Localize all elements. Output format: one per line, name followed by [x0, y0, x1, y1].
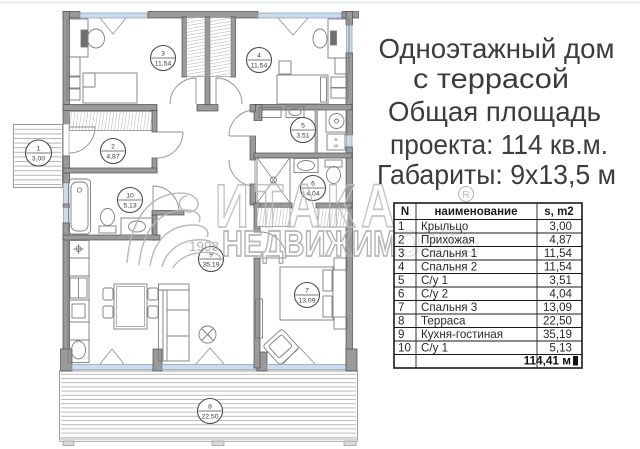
svg-text:11,54: 11,54	[251, 63, 268, 70]
svg-text:с террасой: с террасой	[413, 63, 569, 94]
svg-text:Одноэтажный дом: Одноэтажный дом	[379, 33, 615, 64]
svg-text:11,54: 11,54	[155, 61, 172, 68]
svg-text:4,87: 4,87	[106, 154, 119, 161]
svg-text:11,54: 11,54	[544, 261, 573, 274]
svg-text:Общая площадь: Общая площадь	[388, 96, 601, 127]
svg-text:4: 4	[257, 53, 261, 60]
svg-text:22,50: 22,50	[543, 315, 572, 328]
svg-text:Терраса: Терраса	[421, 315, 466, 328]
svg-text:9: 9	[398, 328, 404, 341]
svg-text:114,41 м: 114,41 м	[524, 354, 571, 368]
svg-text:4,04: 4,04	[549, 288, 572, 301]
svg-text:6: 6	[398, 288, 404, 301]
svg-text:проекта: 114 кв.м.: проекта: 114 кв.м.	[390, 129, 608, 160]
svg-text:8: 8	[398, 315, 404, 328]
svg-text:22,50: 22,50	[201, 414, 218, 421]
svg-text:3,00: 3,00	[549, 220, 572, 233]
svg-text:Спальня 3: Спальня 3	[421, 301, 477, 314]
svg-text:7: 7	[398, 301, 404, 314]
svg-text:Крыльцо: Крыльцо	[421, 220, 468, 233]
svg-text:10: 10	[398, 342, 411, 355]
svg-text:N: N	[401, 206, 409, 218]
svg-text:3,51: 3,51	[549, 274, 572, 287]
svg-text:наименование: наименование	[434, 206, 517, 218]
svg-text:3,51: 3,51	[296, 133, 309, 140]
svg-text:Ш: Ш	[334, 143, 338, 148]
svg-text:13,09: 13,09	[543, 301, 572, 314]
svg-text:Прихожая: Прихожая	[421, 234, 475, 247]
svg-text:С/у 1: С/у 1	[421, 342, 448, 355]
svg-text:R: R	[462, 190, 469, 201]
svg-text:4,87: 4,87	[549, 234, 572, 247]
svg-text:10: 10	[126, 193, 134, 200]
svg-text:2: 2	[398, 234, 404, 247]
svg-text:Габариты: 9x13,5 м: Габариты: 9x13,5 м	[377, 159, 616, 190]
svg-text:Спальня 1: Спальня 1	[421, 247, 477, 260]
svg-text:2: 2	[111, 144, 115, 151]
svg-text:35,19: 35,19	[543, 328, 572, 341]
svg-text:s, m2: s, m2	[544, 206, 573, 218]
svg-text:35,19: 35,19	[202, 262, 219, 269]
svg-text:Кухня-гостиная: Кухня-гостиная	[421, 328, 503, 341]
svg-text:1: 1	[37, 146, 41, 153]
svg-text:13,09: 13,09	[298, 298, 315, 305]
svg-text:С/у 1: С/у 1	[421, 274, 448, 287]
svg-text:1: 1	[398, 220, 404, 233]
svg-text:1993: 1993	[189, 239, 219, 254]
svg-text:3: 3	[398, 247, 404, 260]
svg-text:11,54: 11,54	[544, 247, 573, 260]
svg-text:5: 5	[301, 123, 305, 130]
svg-text:5,13: 5,13	[123, 203, 136, 210]
svg-text:Спальня 2: Спальня 2	[421, 261, 477, 274]
svg-text:С/у 2: С/у 2	[421, 288, 448, 301]
svg-text:В: В	[334, 137, 337, 142]
svg-text:5: 5	[398, 274, 404, 287]
svg-text:3: 3	[161, 51, 165, 58]
svg-text:3,00: 3,00	[32, 156, 45, 163]
svg-text:7: 7	[305, 288, 309, 295]
svg-text:4: 4	[398, 261, 405, 274]
svg-text:8: 8	[208, 404, 212, 411]
